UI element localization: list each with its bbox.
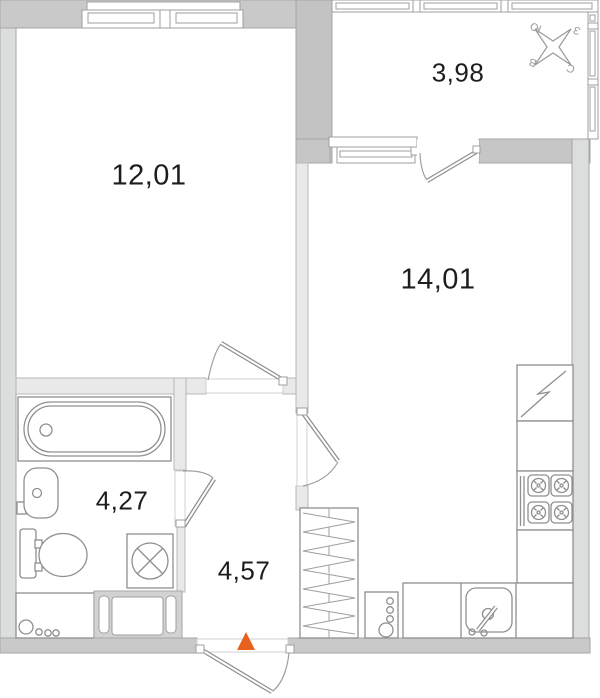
riser-pipes-icon <box>16 593 94 638</box>
walls <box>0 0 590 653</box>
living-room-door-icon <box>206 343 287 393</box>
bathroom-right-wall <box>174 378 186 470</box>
fridge-icon <box>517 365 573 421</box>
kitchen-window-icon <box>329 137 419 163</box>
bathtub-icon <box>18 397 171 461</box>
living-room-window-icon <box>82 2 243 28</box>
washbasin-icon <box>17 468 58 518</box>
bathroom-area-label: 4,27 <box>96 486 149 517</box>
bottom-wall-right <box>288 638 590 653</box>
kitchen-area-label: 14,01 <box>400 264 475 297</box>
kitchen-door-icon <box>297 408 338 486</box>
bathroom-door-icon <box>175 471 214 527</box>
compass-rose-icon <box>535 29 571 65</box>
right-exterior-wall <box>572 139 589 653</box>
partition-stub <box>296 486 308 510</box>
balcony-area-label: 3,98 <box>432 58 485 89</box>
floor-plan-drawing <box>0 0 600 698</box>
bottom-wall-left <box>0 638 197 653</box>
heater-panel-icon <box>94 591 182 638</box>
kitchen-cabinet <box>517 421 573 471</box>
stove-icon <box>517 471 573 530</box>
kitchen-partition-wall <box>296 163 308 413</box>
kitchen-top-wall-left <box>296 139 330 163</box>
floor-plan: 12,01 3,98 14,01 4,27 4,57 Ю З В С <box>0 0 600 698</box>
vent-shaft-icon <box>300 508 358 638</box>
bathroom-right-wall-lower <box>177 526 185 592</box>
living-room-area-label: 12,01 <box>111 160 186 193</box>
washing-machine-icon <box>127 534 173 588</box>
balcony-door-icon <box>417 140 480 181</box>
kitchen-cabinet <box>517 530 573 583</box>
riser-pipes-icon <box>365 592 398 638</box>
hallway-area-label: 4,57 <box>218 556 271 587</box>
left-exterior-wall <box>0 0 16 653</box>
toilet-icon <box>20 529 87 578</box>
kitchen-counter <box>403 583 573 638</box>
